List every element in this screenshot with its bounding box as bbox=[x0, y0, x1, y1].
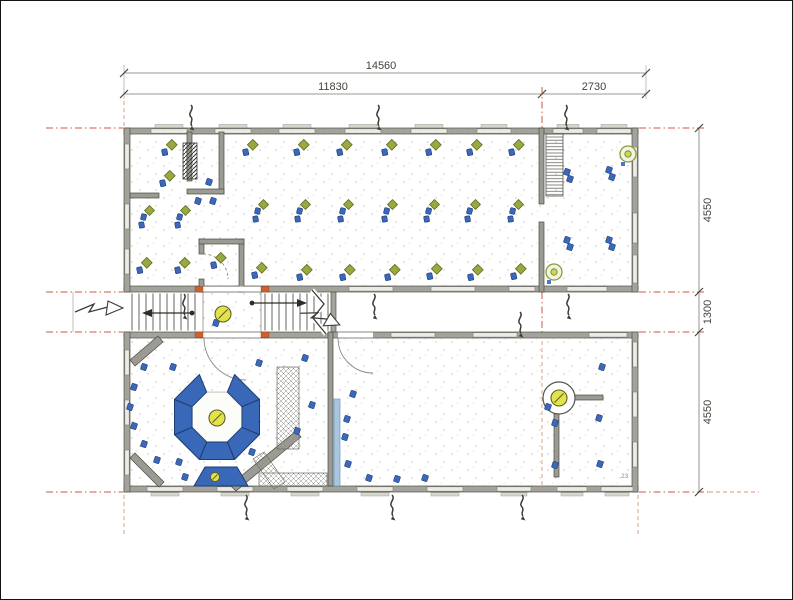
partition-wall bbox=[219, 132, 224, 194]
door-opening bbox=[338, 332, 373, 337]
window bbox=[589, 333, 627, 337]
window bbox=[147, 487, 183, 491]
window-sill bbox=[221, 493, 249, 496]
window-sill bbox=[155, 124, 183, 127]
room-divider-wall bbox=[328, 332, 333, 486]
window-sill bbox=[561, 493, 583, 496]
door-jamb-marker bbox=[195, 287, 203, 293]
downspout-symbol bbox=[391, 495, 396, 521]
landing-door-opening bbox=[203, 287, 261, 292]
window bbox=[473, 333, 517, 337]
window bbox=[411, 129, 447, 133]
window bbox=[125, 350, 129, 375]
window-sill bbox=[151, 493, 179, 496]
dim-lower-depth: 4550 bbox=[702, 400, 714, 424]
window bbox=[431, 287, 475, 291]
window bbox=[349, 287, 393, 291]
shelf-unit bbox=[277, 367, 299, 449]
vestibule-wall bbox=[199, 239, 244, 244]
window-sill bbox=[349, 124, 377, 127]
window-sill bbox=[601, 124, 627, 127]
dim-left-width: 11830 bbox=[318, 81, 348, 93]
downspout-symbol bbox=[183, 294, 188, 320]
window bbox=[633, 442, 637, 467]
window bbox=[125, 204, 129, 229]
window-sill bbox=[283, 124, 311, 127]
floor-plan-drawing: 14560 11830 2730 4550 1300 4550 bbox=[0, 0, 793, 600]
partition-wall bbox=[539, 222, 544, 292]
small-lamp-symbol bbox=[211, 473, 220, 482]
window bbox=[357, 487, 393, 491]
entrance-arrow bbox=[75, 301, 123, 315]
window bbox=[633, 213, 637, 243]
dim-upper-depth: 4550 bbox=[702, 198, 714, 222]
lamp-symbol bbox=[209, 410, 225, 426]
window bbox=[633, 255, 637, 283]
vestibule-wall bbox=[239, 239, 244, 292]
window bbox=[279, 129, 315, 133]
window bbox=[597, 129, 631, 133]
stair-direction-arrow-left bbox=[142, 309, 194, 317]
window-sill bbox=[361, 493, 389, 496]
window-sill bbox=[415, 124, 443, 127]
window bbox=[497, 487, 531, 491]
window bbox=[151, 129, 187, 133]
window bbox=[125, 249, 129, 274]
window bbox=[477, 129, 511, 133]
window bbox=[633, 342, 637, 367]
dim-corridor-depth: 1300 bbox=[702, 300, 714, 324]
window-sill bbox=[605, 493, 629, 496]
window bbox=[345, 129, 381, 133]
window-sill bbox=[557, 124, 579, 127]
window bbox=[391, 333, 435, 337]
door-jamb-marker bbox=[261, 332, 269, 338]
partition-wall bbox=[130, 193, 159, 198]
downspout-symbol bbox=[521, 495, 526, 521]
door-jamb-marker bbox=[195, 332, 203, 338]
window bbox=[633, 392, 637, 417]
partition-wall bbox=[187, 189, 224, 194]
window bbox=[287, 487, 323, 491]
downspout-symbol bbox=[377, 105, 382, 131]
window bbox=[567, 287, 607, 291]
downspout-symbol bbox=[373, 294, 378, 320]
downspout-symbol bbox=[245, 495, 250, 521]
window-sill bbox=[219, 124, 247, 127]
window bbox=[601, 487, 633, 491]
dim-right-width: 2730 bbox=[582, 81, 606, 93]
downspout-symbol bbox=[567, 294, 572, 320]
window bbox=[509, 287, 535, 291]
lamp-symbol bbox=[215, 306, 231, 322]
window bbox=[125, 450, 129, 475]
landing-door-opening bbox=[203, 332, 261, 337]
lamp-symbol bbox=[551, 390, 567, 406]
window-sill bbox=[431, 493, 459, 496]
duct-shaft bbox=[183, 143, 197, 179]
window bbox=[557, 487, 587, 491]
ladder bbox=[546, 134, 563, 196]
window bbox=[427, 487, 463, 491]
door-jamb-marker bbox=[261, 287, 269, 293]
window-sill bbox=[291, 493, 319, 496]
window bbox=[125, 144, 129, 169]
dim-total-width: 14560 bbox=[366, 60, 397, 72]
floor-plan-svg: 14560 11830 2730 4550 1300 4550 bbox=[1, 1, 793, 600]
wall-mounted-bench bbox=[334, 399, 340, 486]
window-sill bbox=[481, 124, 507, 127]
partition-wall bbox=[539, 128, 544, 204]
stairwell-end-wall bbox=[331, 292, 336, 332]
downspout-symbol bbox=[190, 105, 195, 131]
room-number-label: 23 bbox=[621, 473, 629, 480]
